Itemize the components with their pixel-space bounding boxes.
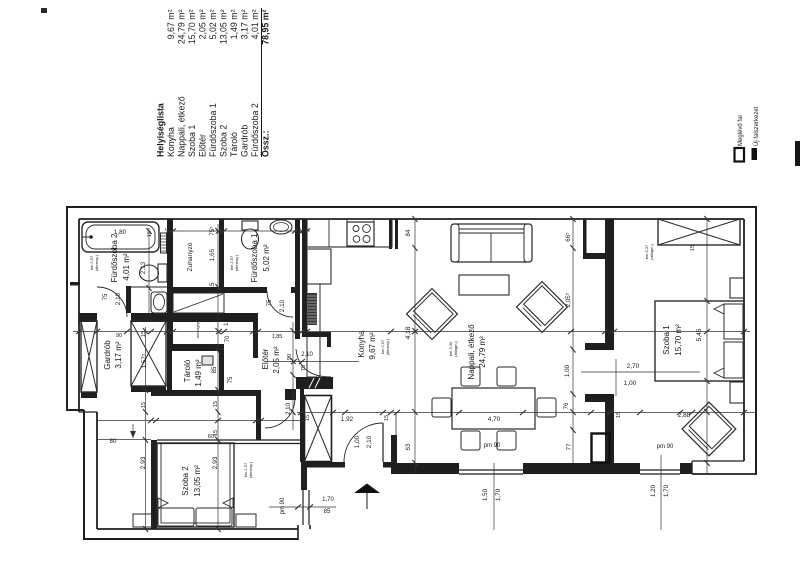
svg-text:15: 15 — [384, 415, 390, 421]
svg-text:66⁵: 66⁵ — [565, 232, 572, 242]
svg-text:76: 76 — [563, 402, 570, 409]
svg-text:2,93: 2,93 — [140, 456, 147, 469]
svg-text:15: 15 — [301, 227, 307, 234]
svg-text:60⁵: 60⁵ — [208, 433, 216, 440]
svg-text:2,10: 2,10 — [115, 292, 122, 305]
svg-text:9,67 m²: 9,67 m² — [368, 332, 377, 359]
svg-text:15: 15 — [213, 401, 219, 407]
svg-text:2,05 m²: 2,05 m² — [198, 9, 208, 39]
svg-text:75: 75 — [228, 376, 234, 383]
svg-text:1,00: 1,00 — [354, 435, 361, 448]
svg-text:Szoba 1: Szoba 1 — [662, 325, 671, 355]
svg-text:15: 15 — [690, 245, 696, 251]
svg-text:15: 15 — [305, 415, 311, 421]
svg-text:mosógép: mosógép — [195, 321, 200, 338]
svg-text:5,02 m²: 5,02 m² — [208, 9, 218, 39]
svg-text:1,85: 1,85 — [272, 334, 283, 340]
svg-text:63: 63 — [405, 443, 412, 450]
svg-text:84: 84 — [405, 229, 412, 236]
svg-text:5,02 m²: 5,02 m² — [262, 244, 271, 271]
svg-text:77: 77 — [566, 443, 573, 450]
svg-text:Tároló: Tároló — [229, 132, 239, 157]
svg-text:Nappali, étkező: Nappali, étkező — [467, 324, 476, 380]
svg-text:1,20: 1,20 — [650, 484, 657, 497]
svg-text:1,70: 1,70 — [663, 484, 670, 497]
svg-text:9,67 m²: 9,67 m² — [166, 9, 176, 39]
svg-text:(átlagm.): (átlagm.) — [649, 243, 654, 259]
svg-text:Szoba 2: Szoba 2 — [219, 125, 229, 157]
svg-text:4,18: 4,18 — [405, 326, 412, 339]
svg-text:Fürdőszoba 1: Fürdőszoba 1 — [208, 103, 218, 157]
svg-text:Konyha: Konyha — [166, 127, 176, 157]
svg-text:2,13: 2,13 — [140, 261, 147, 274]
svg-text:15: 15 — [210, 282, 216, 289]
svg-text:1,50: 1,50 — [482, 488, 489, 501]
svg-text:1,49 m²: 1,49 m² — [229, 9, 239, 39]
svg-text:4,70: 4,70 — [488, 416, 501, 423]
svg-text:2,10: 2,10 — [366, 435, 373, 448]
svg-text:Előtér: Előtér — [261, 348, 270, 369]
svg-text:pm 90: pm 90 — [657, 444, 674, 450]
svg-text:2,10: 2,10 — [285, 402, 292, 415]
svg-text:75⁵: 75⁵ — [209, 226, 216, 236]
svg-text:24,79 m²: 24,79 m² — [478, 336, 487, 368]
svg-text:Szoba 2: Szoba 2 — [181, 466, 190, 496]
svg-text:pm 90: pm 90 — [280, 497, 286, 514]
svg-text:Tároló: Tároló — [183, 359, 192, 382]
svg-text:2,10: 2,10 — [301, 352, 313, 358]
svg-text:15: 15 — [166, 227, 172, 234]
svg-text:3,17 m²: 3,17 m² — [114, 341, 123, 368]
svg-text:15: 15 — [616, 412, 622, 418]
svg-text:1,80: 1,80 — [114, 229, 127, 236]
svg-text:15,70 m²: 15,70 m² — [187, 9, 197, 44]
svg-text:1,70: 1,70 — [495, 488, 502, 501]
svg-text:90: 90 — [116, 333, 122, 339]
svg-text:13,05 m²: 13,05 m² — [219, 9, 229, 44]
svg-text:24,79 m²: 24,79 m² — [177, 9, 187, 44]
svg-text:Meglévő fal: Meglévő fal — [738, 115, 744, 146]
svg-text:Előtér: Előtér — [198, 134, 208, 157]
svg-text:2,05 m²: 2,05 m² — [272, 346, 281, 373]
svg-text:75: 75 — [301, 365, 307, 371]
svg-text:2,05⁵: 2,05⁵ — [565, 292, 572, 307]
svg-text:4,01 m²: 4,01 m² — [250, 9, 260, 39]
svg-text:90: 90 — [287, 354, 293, 360]
svg-text:15: 15 — [147, 231, 153, 237]
svg-text:15: 15 — [141, 331, 147, 337]
svg-text:(álmeny.): (álmeny.) — [385, 338, 390, 355]
svg-text:2,88: 2,88 — [678, 412, 691, 419]
svg-text:Gardrób: Gardrób — [240, 125, 250, 157]
svg-text:1,05: 1,05 — [224, 314, 230, 326]
svg-text:1,70: 1,70 — [322, 497, 334, 503]
svg-text:2,10: 2,10 — [279, 299, 286, 312]
svg-text:(álmeny.): (álmeny.) — [248, 461, 253, 478]
svg-text:Nappali, étkező: Nappali, étkező — [177, 96, 187, 157]
svg-text:85: 85 — [212, 366, 218, 373]
svg-text:Konyha: Konyha — [357, 330, 366, 358]
svg-text:5,45: 5,45 — [696, 328, 703, 341]
svg-text:(átlagm.): (átlagm.) — [453, 340, 458, 356]
svg-text:Zuhanyzó: Zuhanyzó — [187, 242, 194, 271]
svg-text:Fürdőszoba 1: Fürdőszoba 1 — [250, 233, 259, 282]
svg-text:1,92: 1,92 — [341, 416, 354, 423]
svg-text:pm 90: pm 90 — [484, 443, 501, 449]
svg-text:2,93: 2,93 — [212, 456, 219, 469]
svg-text:80: 80 — [110, 438, 117, 445]
svg-text:4,01 m²: 4,01 m² — [122, 253, 131, 280]
svg-text:1,00: 1,00 — [564, 364, 571, 377]
svg-text:Fürdőszoba 2: Fürdőszoba 2 — [110, 233, 119, 282]
svg-text:1,57⁵: 1,57⁵ — [141, 353, 148, 368]
svg-text:15: 15 — [141, 402, 147, 408]
svg-text:Fürdőszoba 2: Fürdőszoba 2 — [250, 103, 260, 157]
svg-text:Új falszerkezet: Új falszerkezet — [753, 106, 760, 146]
svg-text:Szoba 1: Szoba 1 — [187, 125, 197, 157]
svg-text:1,65: 1,65 — [209, 248, 216, 261]
svg-text:(álmeny.): (álmeny.) — [234, 254, 239, 271]
svg-text:1,49 m²: 1,49 m² — [194, 359, 203, 386]
svg-text:15,70 m²: 15,70 m² — [674, 324, 683, 356]
svg-text:1,00: 1,00 — [624, 380, 637, 387]
svg-text:3,17 m²: 3,17 m² — [240, 9, 250, 39]
svg-text:Gardrób: Gardrób — [103, 340, 112, 370]
svg-text:13,05 m²: 13,05 m² — [193, 465, 202, 497]
svg-text:(álmeny.): (álmeny.) — [94, 254, 99, 271]
svg-text:70: 70 — [225, 335, 231, 342]
svg-text:Helyiséglista: Helyiséglista — [156, 103, 166, 157]
svg-text:85: 85 — [324, 509, 331, 515]
svg-text:2,70: 2,70 — [627, 363, 640, 370]
svg-text:75: 75 — [103, 293, 109, 300]
svg-text:75: 75 — [267, 299, 273, 306]
